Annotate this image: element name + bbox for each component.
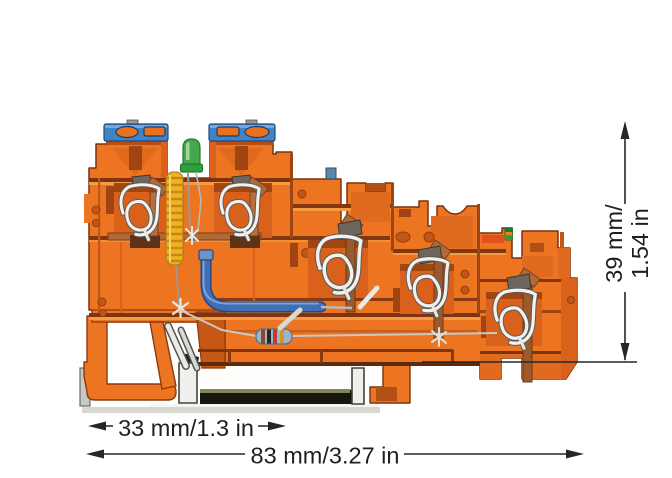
svg-text:39 mm/1.54 in: 39 mm/1.54 in [601, 204, 653, 283]
svg-text:83 mm/3.27 in: 83 mm/3.27 in [251, 443, 400, 469]
svg-text:33 mm/1.3 in: 33 mm/1.3 in [118, 415, 254, 441]
